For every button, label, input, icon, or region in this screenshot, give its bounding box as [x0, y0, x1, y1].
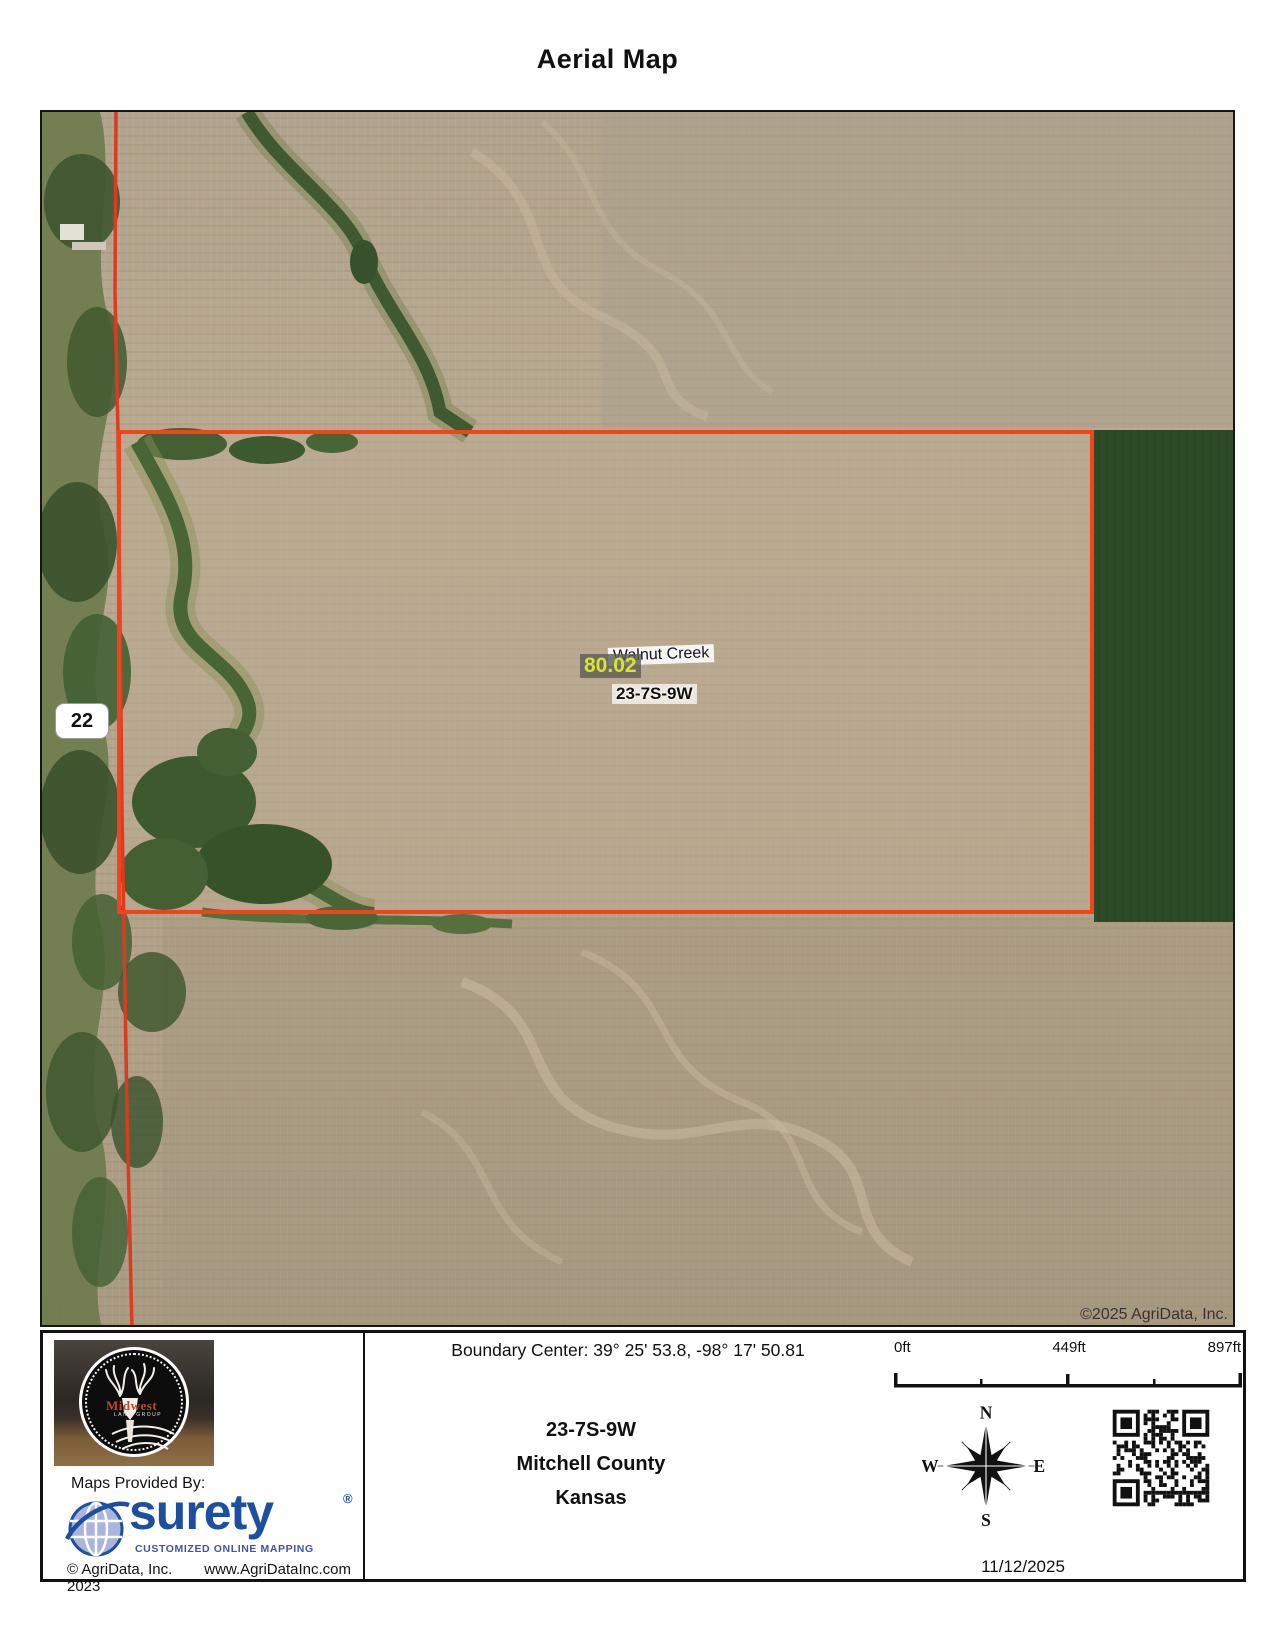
- footer-info-panel: Midwest LAND GROUP Maps Provided By: sur…: [40, 1330, 1246, 1582]
- map-copyright-text: ©2025 AgriData, Inc.: [1080, 1306, 1228, 1324]
- qr-code: [1105, 1402, 1217, 1514]
- location-section: 23-7S-9W: [373, 1413, 809, 1447]
- footer-section-divider: [363, 1333, 365, 1579]
- svg-text:N: N: [980, 1402, 993, 1422]
- aerial-map-report-page: Aerial Map: [0, 0, 1275, 1650]
- compass-rose-icon: N S E W: [922, 1402, 1050, 1530]
- road-number-marker: 22: [56, 704, 108, 738]
- parcel-acreage-label: 80.02: [580, 654, 641, 678]
- aerial-map-image: Walnut Creek 80.02 23-7S-9W 22 ©2025 Agr…: [40, 110, 1235, 1327]
- scale-label-max: 897ft: [1208, 1339, 1241, 1356]
- svg-text:E: E: [1034, 1456, 1046, 1476]
- scale-bar: [894, 1373, 1242, 1389]
- surety-logo: surety ® CUSTOMIZED ONLINE MAPPING: [65, 1495, 355, 1561]
- page-title: Aerial Map: [40, 44, 1175, 75]
- agridata-copyright: © AgriData, Inc. 2023: [67, 1561, 204, 1595]
- location-state: Kansas: [373, 1481, 809, 1515]
- scale-label-mid: 449ft: [1052, 1339, 1085, 1356]
- surety-wordmark: surety: [129, 1483, 273, 1541]
- section-township-range-label: 23-7S-9W: [612, 684, 697, 704]
- scale-bar-labels: 0ft 449ft 897ft: [43, 1339, 1243, 1359]
- location-county: Mitchell County: [373, 1447, 809, 1481]
- svg-text:S: S: [981, 1510, 991, 1530]
- agridata-credit-row: © AgriData, Inc. 2023 www.AgriDataInc.co…: [67, 1561, 351, 1595]
- location-block: 23-7S-9W Mitchell County Kansas: [373, 1413, 809, 1515]
- surety-registered-mark: ®: [343, 1491, 353, 1506]
- midwest-logo-subtitle: LAND GROUP: [114, 1412, 162, 1418]
- surety-tagline: CUSTOMIZED ONLINE MAPPING: [135, 1543, 314, 1555]
- map-date: 11/12/2025: [943, 1557, 1103, 1577]
- agridata-website: www.AgriDataInc.com: [204, 1561, 351, 1595]
- svg-text:W: W: [922, 1456, 939, 1476]
- globe-icon: [65, 1495, 131, 1561]
- scale-label-zero: 0ft: [894, 1339, 911, 1356]
